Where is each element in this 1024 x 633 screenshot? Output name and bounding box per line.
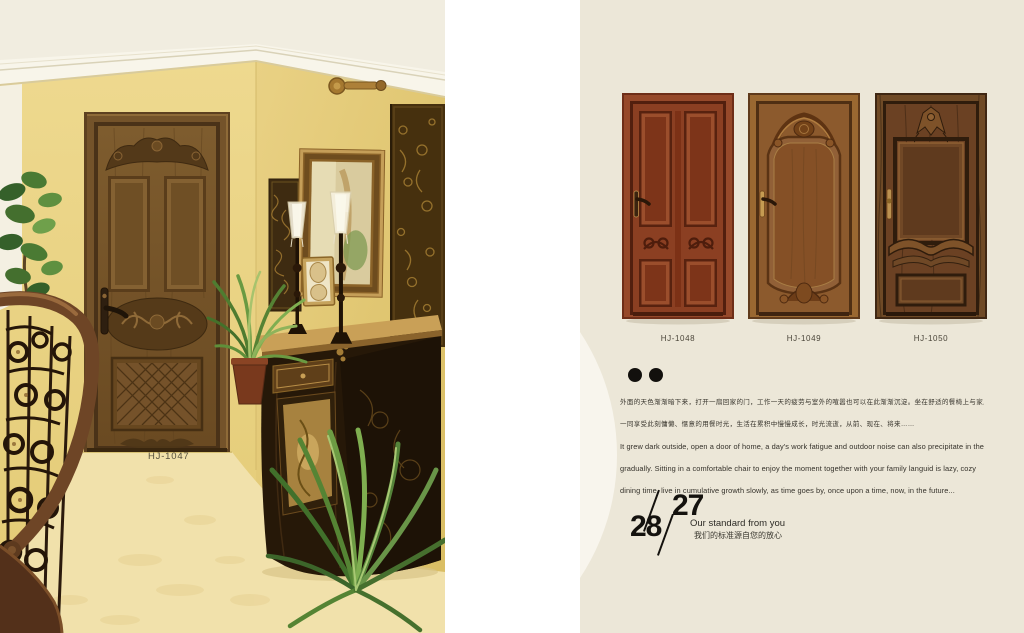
artwork-right xyxy=(391,104,445,347)
product-door-1048: HJ-1048 xyxy=(621,93,735,343)
product-label: HJ-1049 xyxy=(747,334,861,343)
page-number-28: 28 xyxy=(630,512,661,542)
door-1049-image xyxy=(748,93,860,325)
door-1047 xyxy=(84,112,230,452)
door-1050-image xyxy=(875,93,987,325)
door-1050-handle xyxy=(887,189,892,219)
paragraph-cn-line2: 一同享受此刻慵懒、惬意的用餐时光，生活在累积中慢慢成长，时光流逝，从前、现在、将… xyxy=(620,414,984,436)
product-door-1050: HJ-1050 xyxy=(874,93,988,343)
decor-dot xyxy=(649,368,663,382)
door-1047-label: HJ-1047 xyxy=(148,451,190,462)
door-1048-image xyxy=(622,93,734,325)
tagline-cn: 我们的标准源自您的放心 xyxy=(694,530,782,541)
decor-dot xyxy=(628,368,642,382)
paragraph-en-line1: It grew dark outside, open a door of hom… xyxy=(620,436,984,458)
paragraph-en-line2: gradually. Sitting in a comfortable chai… xyxy=(620,458,984,480)
decor-circle xyxy=(580,232,617,633)
door-1050-lower-panel xyxy=(897,275,965,305)
interior-photo: HJ-1047 xyxy=(0,0,445,633)
door-1047-medallion xyxy=(107,298,207,350)
photo-frame xyxy=(302,257,335,306)
pagination: 27 28 Our standard from you 我们的标准源自您的放心 xyxy=(628,488,858,560)
page-right: HJ-1048 xyxy=(580,0,1024,633)
product-label: HJ-1048 xyxy=(621,334,735,343)
page-number-27: 27 xyxy=(672,491,703,521)
description-text: 外面的天色渐渐暗下来，打开一扇回家的门，工作一天的疲劳与室外的喧嚣也可以在此渐渐… xyxy=(620,392,984,502)
tagline-en: Our standard from you xyxy=(690,518,785,529)
product-door-1049: HJ-1049 xyxy=(747,93,861,343)
page-left-photo: HJ-1047 xyxy=(0,0,445,633)
product-label: HJ-1050 xyxy=(874,334,988,343)
door-1050-upper-panel xyxy=(895,139,967,243)
console-table xyxy=(256,315,442,581)
catalog-spread: HJ-1047 xyxy=(0,0,1024,633)
paragraph-cn-line1: 外面的天色渐渐暗下来，打开一扇回家的门，工作一天的疲劳与室外的喧嚣也可以在此渐渐… xyxy=(620,392,984,414)
